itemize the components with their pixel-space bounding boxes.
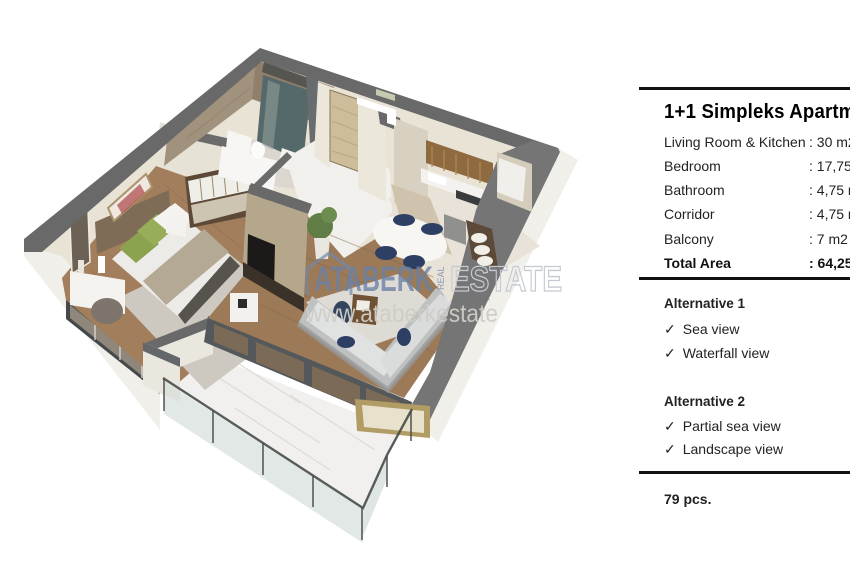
svg-text:ATABERK: ATABERK [314, 260, 433, 299]
svg-text:www.ataberkestate: www.ataberkestate [305, 300, 498, 328]
svg-text:ESTATE: ESTATE [450, 260, 562, 299]
svg-text:REAL: REAL [436, 266, 446, 290]
